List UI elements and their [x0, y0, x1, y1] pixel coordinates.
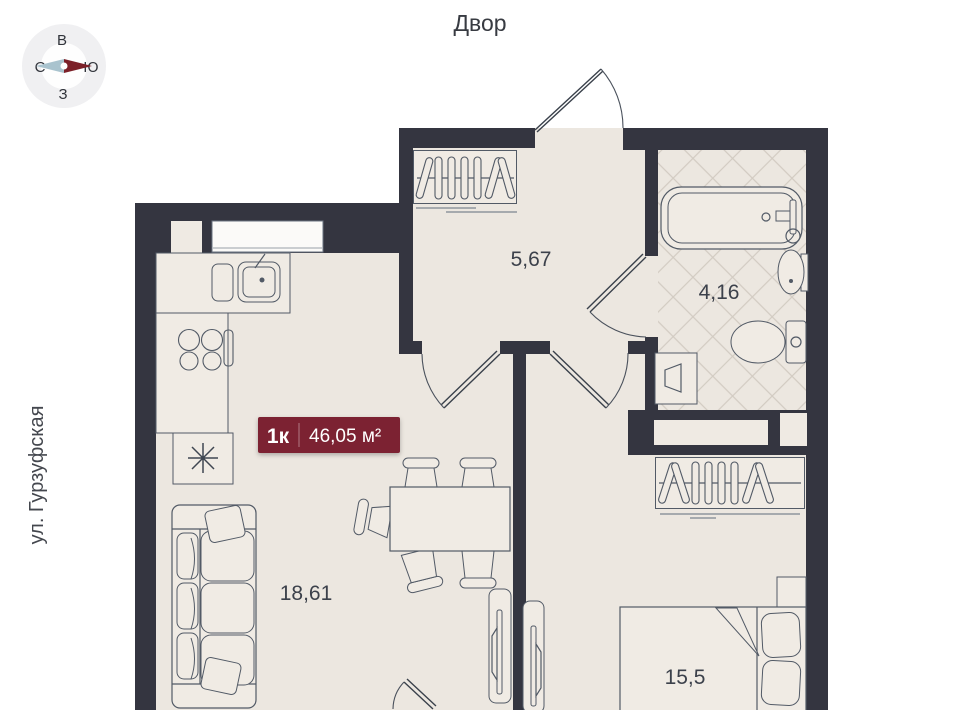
washing-machine — [655, 353, 697, 404]
tv-unit-living — [489, 589, 511, 703]
wardrobe-hall — [414, 151, 518, 213]
divider-niche — [780, 413, 807, 446]
toilet — [731, 321, 806, 363]
living-kitchen-area-label: 18,61 — [280, 582, 333, 605]
hall-area-label: 5,67 — [511, 248, 552, 271]
bed-pillow-bottom — [761, 660, 801, 706]
wardrobe-bedroom — [656, 458, 805, 519]
floor-plan-page: 5,67 4,16 18,61 15,5 1к 46,05 м² Двор ул… — [0, 0, 960, 710]
tv-unit-bedroom — [523, 601, 544, 710]
bed — [620, 607, 806, 710]
bed-pillow-top — [761, 612, 801, 658]
badge-area: 46,05 м² — [309, 426, 381, 447]
entry-door — [535, 69, 623, 132]
chair — [403, 458, 439, 487]
compass-west: З — [58, 86, 67, 103]
table-top — [390, 487, 510, 551]
chair — [460, 551, 496, 588]
sofa-pillow-top — [204, 505, 246, 544]
bathroom-sink — [778, 250, 808, 294]
street-label: ул. Гурзуфская — [26, 406, 48, 545]
bathtub — [661, 187, 802, 249]
bedroom-area-label: 15,5 — [665, 666, 706, 689]
kitchen-niche — [171, 221, 202, 253]
sofa — [172, 505, 256, 708]
nightstand — [777, 577, 806, 607]
courtyard-label: Двор — [453, 10, 506, 36]
badge-room-count: 1к — [267, 425, 290, 448]
chair — [460, 458, 496, 487]
fridge — [173, 433, 233, 484]
bathroom-area-label: 4,16 — [699, 281, 740, 304]
kitchen-window — [212, 221, 323, 252]
floor-plan: 5,67 4,16 18,61 15,5 1к 46,05 м² Двор ул… — [0, 0, 960, 710]
apartment-badge: 1к 46,05 м² — [258, 417, 400, 453]
divider-duct — [654, 420, 768, 445]
cutting-board — [212, 264, 233, 301]
compass: В С Ю З — [22, 24, 106, 108]
sofa-pillow-bottom — [200, 657, 242, 696]
compass-east: В — [57, 32, 67, 49]
snowflake-icon — [188, 443, 218, 473]
